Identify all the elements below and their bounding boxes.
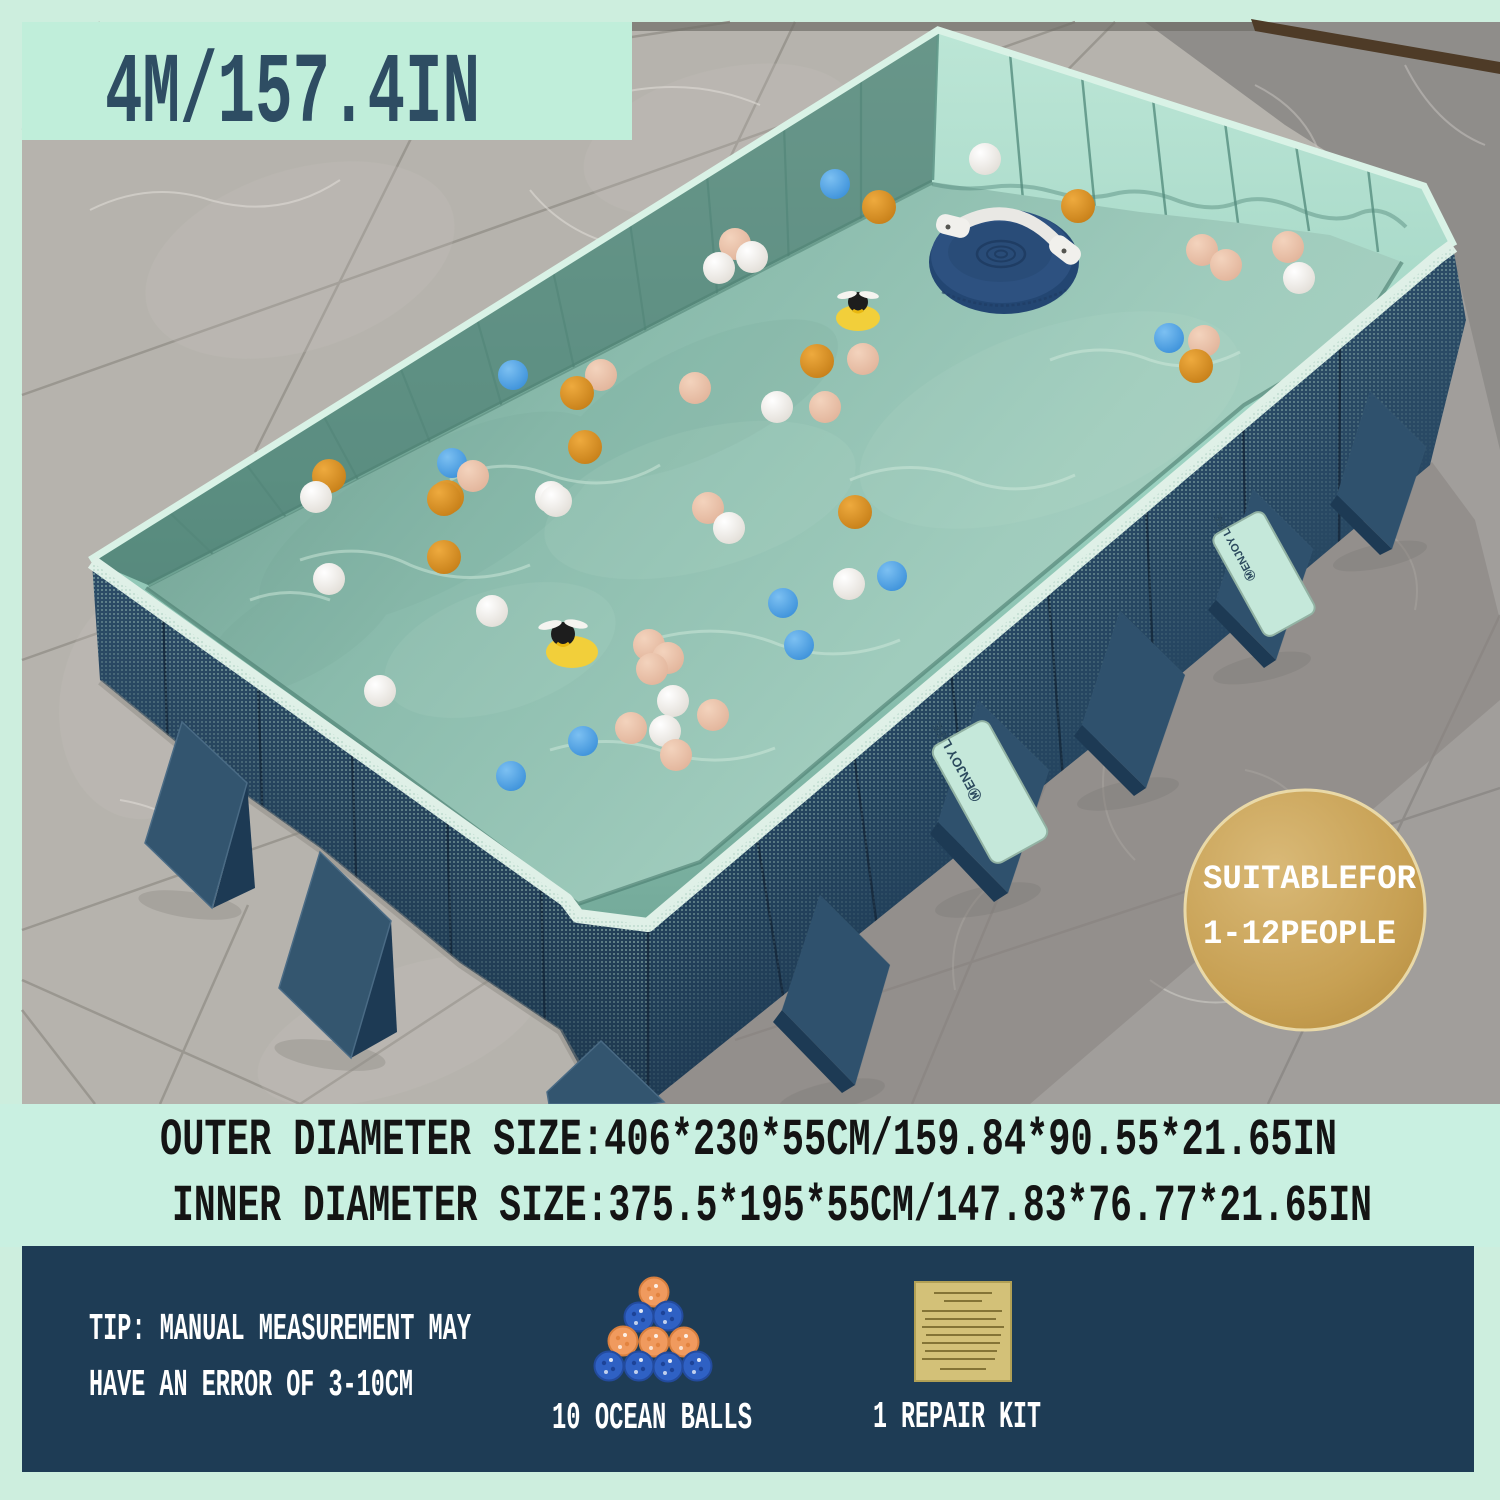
svg-text:HAVE AN ERROR OF 3-10CM: HAVE AN ERROR OF 3-10CM [89,1364,413,1407]
svg-text:4M/157.4IN: 4M/157.4IN [105,39,480,152]
svg-text:TIP: MANUAL MEASUREMENT MAY: TIP: MANUAL MEASUREMENT MAY [89,1308,471,1351]
svg-text:SUITABLEFOR: SUITABLEFOR [1203,861,1417,899]
svg-text:10 OCEAN BALLS: 10 OCEAN BALLS [552,1397,752,1440]
svg-text:1-12PEOPLE: 1-12PEOPLE [1203,916,1396,954]
svg-text:INNER DIAMETER SIZE:375.5*195*: INNER DIAMETER SIZE:375.5*195*55CM/147.8… [172,1177,1372,1236]
svg-text:1 REPAIR KIT: 1 REPAIR KIT [873,1396,1041,1439]
svg-text:OUTER DIAMETER SIZE:406*230*55: OUTER DIAMETER SIZE:406*230*55CM/159.84*… [160,1111,1337,1170]
